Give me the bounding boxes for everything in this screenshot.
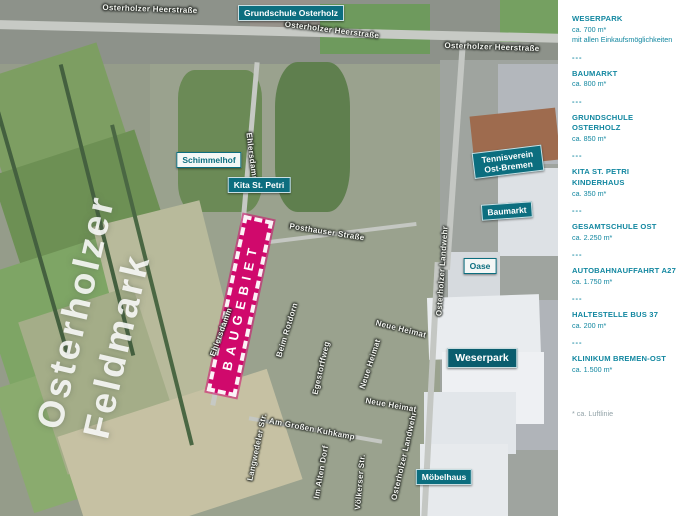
separator: --- — [572, 97, 682, 106]
legend-item-distance: ca. 700 m* — [572, 25, 682, 35]
legend-item-name: WESERPARK — [572, 14, 682, 25]
separator: --- — [572, 250, 682, 259]
exposé-page: Osterholzer Feldmark BAUGEBIET Osterholz… — [0, 0, 690, 516]
legend-item-distance: ca. 2.250 m* — [572, 233, 682, 243]
legend-item-distance: ca. 1.750 m* — [572, 277, 682, 287]
legend-item-name: KITA ST. PETRI KINDERHAUS — [572, 167, 682, 188]
badge-schimmelhof: Schimmelhof — [176, 152, 241, 168]
legend-item-name: KLINIKUM BREMEN-OST — [572, 354, 682, 365]
separator: --- — [572, 53, 682, 62]
badge-kita-st-petri: Kita St. Petri — [228, 177, 291, 193]
legend-item-haltestelle: HALTESTELLE BUS 37 ca. 200 m* — [572, 310, 682, 331]
legend-item-name: AUTOBAHNAUFFAHRT A27 — [572, 266, 682, 277]
badge-grundschule-osterholz: Grundschule Osterholz — [238, 5, 344, 21]
distance-legend-sidebar: WESERPARK ca. 700 m* mit allen Einkaufsm… — [558, 0, 690, 516]
legend-item-distance: ca. 1.500 m* — [572, 365, 682, 375]
legend-item-distance: ca. 200 m* — [572, 321, 682, 331]
legend-item-note: mit allen Einkaufsmöglichkeiten — [572, 35, 682, 45]
separator: --- — [572, 151, 682, 160]
aerial-map: Osterholzer Feldmark BAUGEBIET Osterholz… — [0, 0, 558, 516]
legend-item-distance: ca. 850 m* — [572, 134, 682, 144]
badge-weserpark: Weserpark — [447, 348, 517, 368]
badge-oase: Oase — [464, 258, 497, 274]
separator: --- — [572, 206, 682, 215]
legend-item-name: HALTESTELLE BUS 37 — [572, 310, 682, 321]
legend-item-distance: ca. 800 m* — [572, 79, 682, 89]
legend-item-distance: ca. 350 m* — [572, 189, 682, 199]
legend-item-name: BAUMARKT — [572, 69, 682, 80]
legend-item-name: GESAMTSCHULE OST — [572, 222, 682, 233]
badge-moebelhaus: Möbelhaus — [416, 469, 472, 485]
legend-item-name: GRUNDSCHULE OSTERHOLZ — [572, 113, 682, 134]
separator: --- — [572, 294, 682, 303]
footnote-luftlinie: * ca. Luftlinie — [572, 409, 682, 418]
legend-item-baumarkt: BAUMARKT ca. 800 m* — [572, 69, 682, 90]
legend-item-gesamtschule: GESAMTSCHULE OST ca. 2.250 m* — [572, 222, 682, 243]
legend-item-grundschule: GRUNDSCHULE OSTERHOLZ ca. 850 m* — [572, 113, 682, 145]
legend-item-weserpark: WESERPARK ca. 700 m* mit allen Einkaufsm… — [572, 14, 682, 46]
legend-item-kita: KITA ST. PETRI KINDERHAUS ca. 350 m* — [572, 167, 682, 199]
separator: --- — [572, 338, 682, 347]
legend-item-autobahn: AUTOBAHNAUFFAHRT A27 ca. 1.750 m* — [572, 266, 682, 287]
legend-item-klinikum: KLINIKUM BREMEN-OST ca. 1.500 m* — [572, 354, 682, 375]
